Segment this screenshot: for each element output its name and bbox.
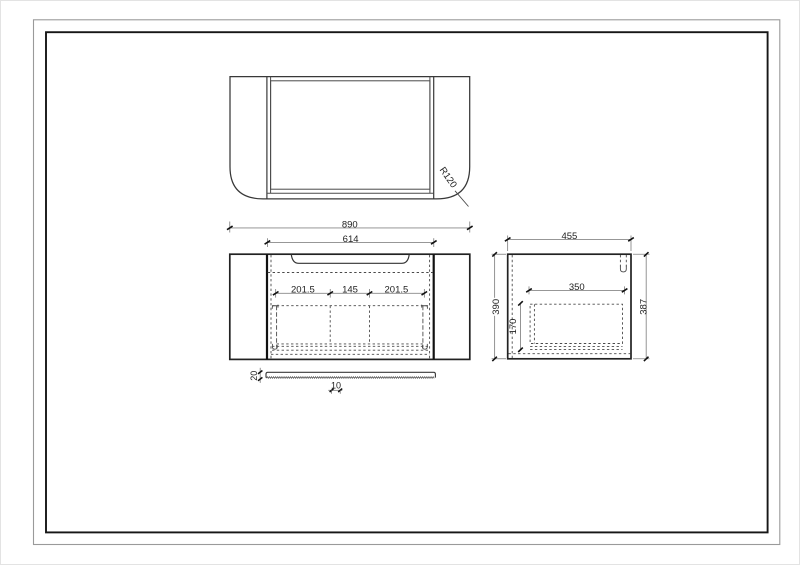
svg-text:170: 170 [508, 319, 519, 335]
svg-text:390: 390 [491, 299, 502, 315]
svg-text:455: 455 [561, 231, 577, 242]
svg-text:387: 387 [639, 299, 650, 315]
svg-text:350: 350 [569, 282, 585, 293]
svg-text:201.5: 201.5 [385, 284, 409, 295]
svg-text:890: 890 [342, 220, 358, 231]
svg-text:20: 20 [249, 371, 259, 381]
svg-text:145: 145 [342, 284, 358, 295]
svg-text:201.5: 201.5 [291, 284, 315, 295]
svg-text:614: 614 [343, 234, 359, 245]
